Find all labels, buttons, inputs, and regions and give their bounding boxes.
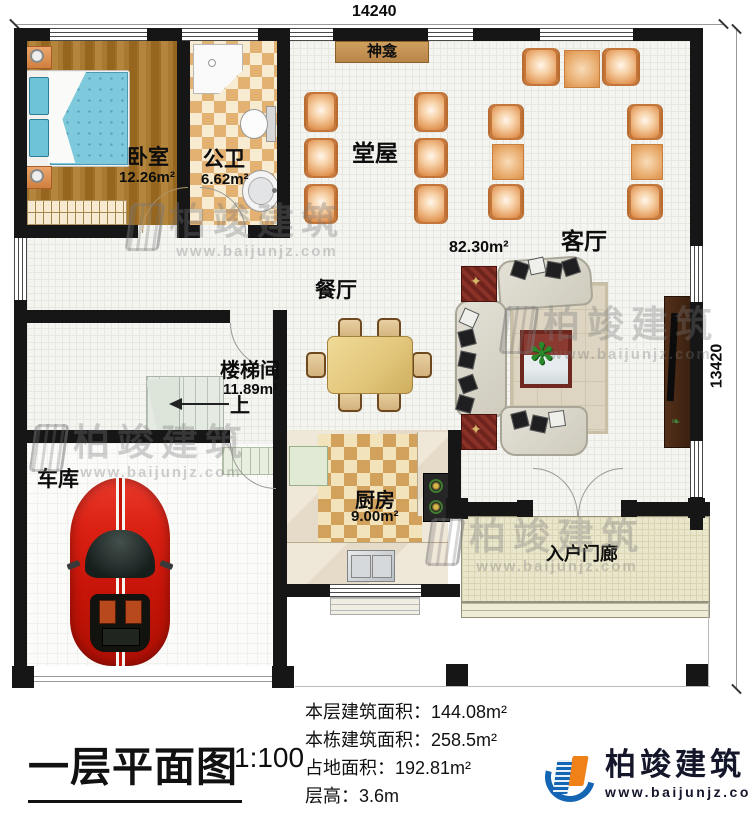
brand-name: 柏竣建筑 <box>605 748 750 782</box>
top-dimension-label: 14240 <box>352 4 397 20</box>
chair-icon <box>629 104 661 140</box>
side-table-icon <box>631 144 663 180</box>
brand-logo: 柏竣建筑 www.baijunjz.com <box>543 748 743 810</box>
corner-table: ✦ <box>461 266 497 302</box>
tv-cabinet: ❧ <box>664 296 692 448</box>
bed-cushion <box>29 119 49 157</box>
window <box>330 584 421 597</box>
kitchen-back-steps <box>330 597 420 615</box>
chair-icon <box>416 184 446 224</box>
side-table-icon <box>492 144 524 180</box>
dining-table <box>327 336 413 394</box>
chair-icon <box>306 138 336 178</box>
stair-arrow <box>163 398 229 410</box>
bedroom-area: 12.26m² <box>119 170 175 185</box>
plan-scale: 1:100 <box>234 744 304 772</box>
garage-label: 车库 <box>37 469 79 490</box>
kitchen-area: 9.00m² <box>351 509 399 524</box>
plan-title: 一层平面图 <box>28 733 242 803</box>
car <box>70 478 170 666</box>
sofa-chaise <box>496 255 593 311</box>
porch-label: 入户门廊 <box>546 545 618 563</box>
right-dimension-label: 13420 <box>709 344 725 389</box>
chair-icon <box>306 184 336 224</box>
wardrobe <box>27 200 127 225</box>
stat-line: 本层建筑面积：144.08m² <box>305 698 507 726</box>
bathroom-area: 6.62m² <box>201 172 249 187</box>
stats-block: 本层建筑面积：144.08m² 本栋建筑面积：258.5m² 占地面积：192.… <box>305 698 507 810</box>
window <box>182 28 258 41</box>
dining-chair-icon <box>412 352 432 378</box>
chair-icon <box>524 48 558 86</box>
dining-label: 餐厅 <box>315 280 357 301</box>
shrine: 神龛 <box>335 41 429 63</box>
chair-icon <box>416 92 446 132</box>
window <box>428 28 473 41</box>
chair-icon <box>306 92 336 132</box>
living-label: 客厅 <box>561 230 607 253</box>
window <box>690 441 703 497</box>
bedroom-label: 卧室 <box>127 147 169 168</box>
coffee-table: ✻ <box>520 330 572 388</box>
top-dimension: 14240 <box>0 0 750 28</box>
window <box>50 28 147 41</box>
stat-line: 本栋建筑面积：258.5m² <box>305 726 507 754</box>
tv-icon <box>667 313 679 401</box>
nightstand <box>24 166 52 189</box>
stat-line: 层高：3.6m <box>305 782 507 810</box>
corner-table: ✦ <box>461 414 497 450</box>
stairwell-label: 楼梯间 <box>220 361 280 381</box>
bed-cushion <box>29 77 49 115</box>
chair-icon <box>604 48 638 86</box>
brand-website: www.baijunjz.com <box>605 784 750 800</box>
window <box>14 238 27 300</box>
toilet <box>240 104 278 144</box>
nightstand <box>24 46 52 69</box>
floor-plan-page: 14240 13420 <box>0 0 750 817</box>
garage-door-line <box>33 676 272 684</box>
window <box>690 246 703 302</box>
hall-label: 堂屋 <box>352 142 398 165</box>
side-table-icon <box>564 50 600 88</box>
chair-icon <box>416 138 446 178</box>
fridge <box>289 446 328 486</box>
engine-cover <box>90 594 150 652</box>
brand-logo-icon <box>543 748 601 808</box>
chair-icon <box>490 104 522 140</box>
dining-chair-icon <box>306 352 326 378</box>
bathroom-label: 公卫 <box>203 149 245 170</box>
plant-icon: ✻ <box>529 340 554 370</box>
porch-steps <box>461 602 710 618</box>
chair-icon <box>490 184 522 220</box>
window <box>540 28 633 41</box>
window <box>290 28 333 41</box>
shrine-label: 神龛 <box>367 43 397 60</box>
stat-line: 占地面积：192.81m² <box>305 754 507 782</box>
hall-area: 82.30m² <box>449 240 509 256</box>
bed <box>24 70 128 165</box>
chair-icon <box>629 184 661 220</box>
stairs-up-label: 上 <box>230 396 250 416</box>
kitchen-sink <box>347 550 395 582</box>
